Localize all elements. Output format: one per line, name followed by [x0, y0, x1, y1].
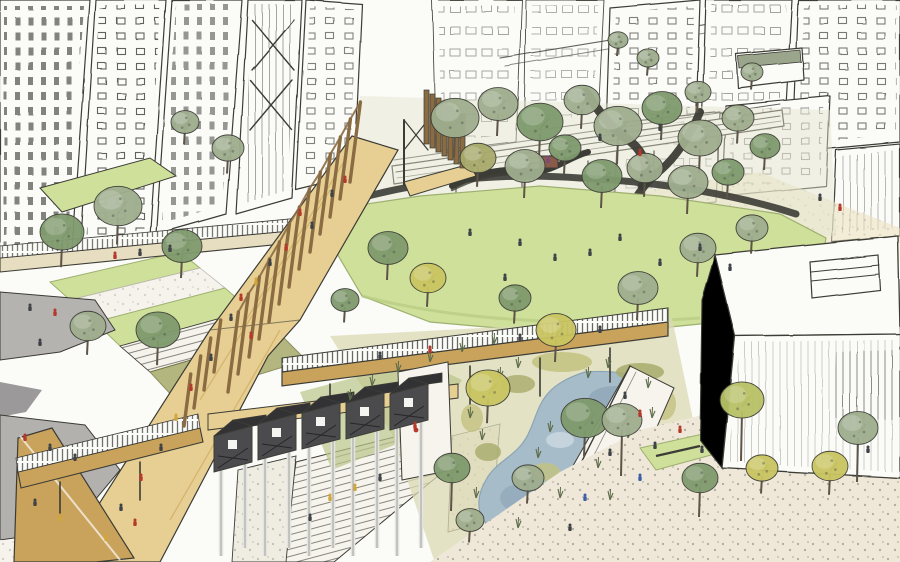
pedestrian — [658, 259, 661, 267]
pedestrian — [598, 134, 601, 142]
pedestrian — [249, 332, 252, 340]
pedestrian — [308, 514, 311, 522]
pedestrian — [23, 434, 26, 442]
pedestrian — [503, 274, 506, 282]
pedestrian — [700, 446, 703, 454]
pedestrian — [254, 278, 257, 286]
illustration-canvas — [0, 0, 900, 562]
pedestrian — [119, 504, 122, 512]
pedestrian — [33, 499, 36, 507]
pedestrian — [168, 245, 171, 253]
pedestrian — [428, 346, 431, 354]
pedestrian — [104, 534, 107, 542]
pedestrian — [239, 294, 242, 302]
pedestrian — [468, 229, 471, 237]
pedestrian — [298, 209, 301, 217]
pedestrian — [229, 314, 232, 322]
pedestrian — [73, 454, 76, 462]
pedestrian — [638, 149, 641, 157]
pedestrian — [838, 204, 841, 212]
pedestrian — [284, 244, 287, 252]
pedestrian — [638, 410, 641, 418]
pedestrian — [728, 264, 731, 272]
pedestrian — [378, 352, 381, 360]
pedestrian — [138, 249, 141, 257]
pedestrian — [818, 194, 821, 202]
pedestrian — [209, 354, 212, 362]
stilt-module-window — [360, 407, 369, 416]
stilt-module-window — [228, 440, 237, 449]
pedestrian — [268, 259, 271, 267]
pedestrian — [518, 334, 521, 342]
pedestrian — [58, 514, 61, 522]
pedestrian — [553, 254, 556, 262]
pedestrian — [623, 392, 626, 400]
pedestrian — [38, 339, 41, 347]
pedestrian — [353, 484, 356, 492]
stilt-module-window — [316, 417, 325, 426]
masterplan-illustration — [0, 0, 900, 562]
pedestrian — [598, 326, 601, 334]
pedestrian — [546, 156, 549, 164]
timber-fin — [424, 90, 429, 144]
pedestrian — [133, 519, 136, 527]
pedestrian — [330, 190, 333, 198]
pedestrian — [328, 494, 331, 502]
stilt-module-window — [404, 398, 413, 407]
pedestrian — [343, 176, 346, 184]
pedestrian — [588, 249, 591, 257]
pedestrian — [658, 124, 661, 132]
pedestrian — [139, 474, 142, 482]
pedestrian — [53, 309, 56, 317]
pedestrian — [866, 446, 869, 454]
stilt-module-window — [272, 428, 281, 437]
pedestrian — [28, 304, 31, 312]
pedestrian — [189, 384, 192, 392]
pedestrian — [678, 426, 681, 434]
pedestrian — [583, 494, 586, 502]
pedestrian — [413, 422, 416, 430]
pedestrian — [608, 449, 611, 457]
pedestrian — [698, 244, 701, 252]
pedestrian — [653, 442, 656, 450]
pedestrian — [568, 524, 571, 532]
pedestrian — [378, 474, 381, 482]
pedestrian — [174, 414, 177, 422]
pedestrian — [638, 474, 641, 482]
building-right-white — [700, 236, 900, 478]
pedestrian — [618, 234, 621, 242]
pedestrian — [159, 444, 162, 452]
pedestrian — [113, 252, 116, 260]
pedestrian — [518, 239, 521, 247]
pedestrian — [310, 222, 313, 230]
pedestrian — [48, 444, 51, 452]
